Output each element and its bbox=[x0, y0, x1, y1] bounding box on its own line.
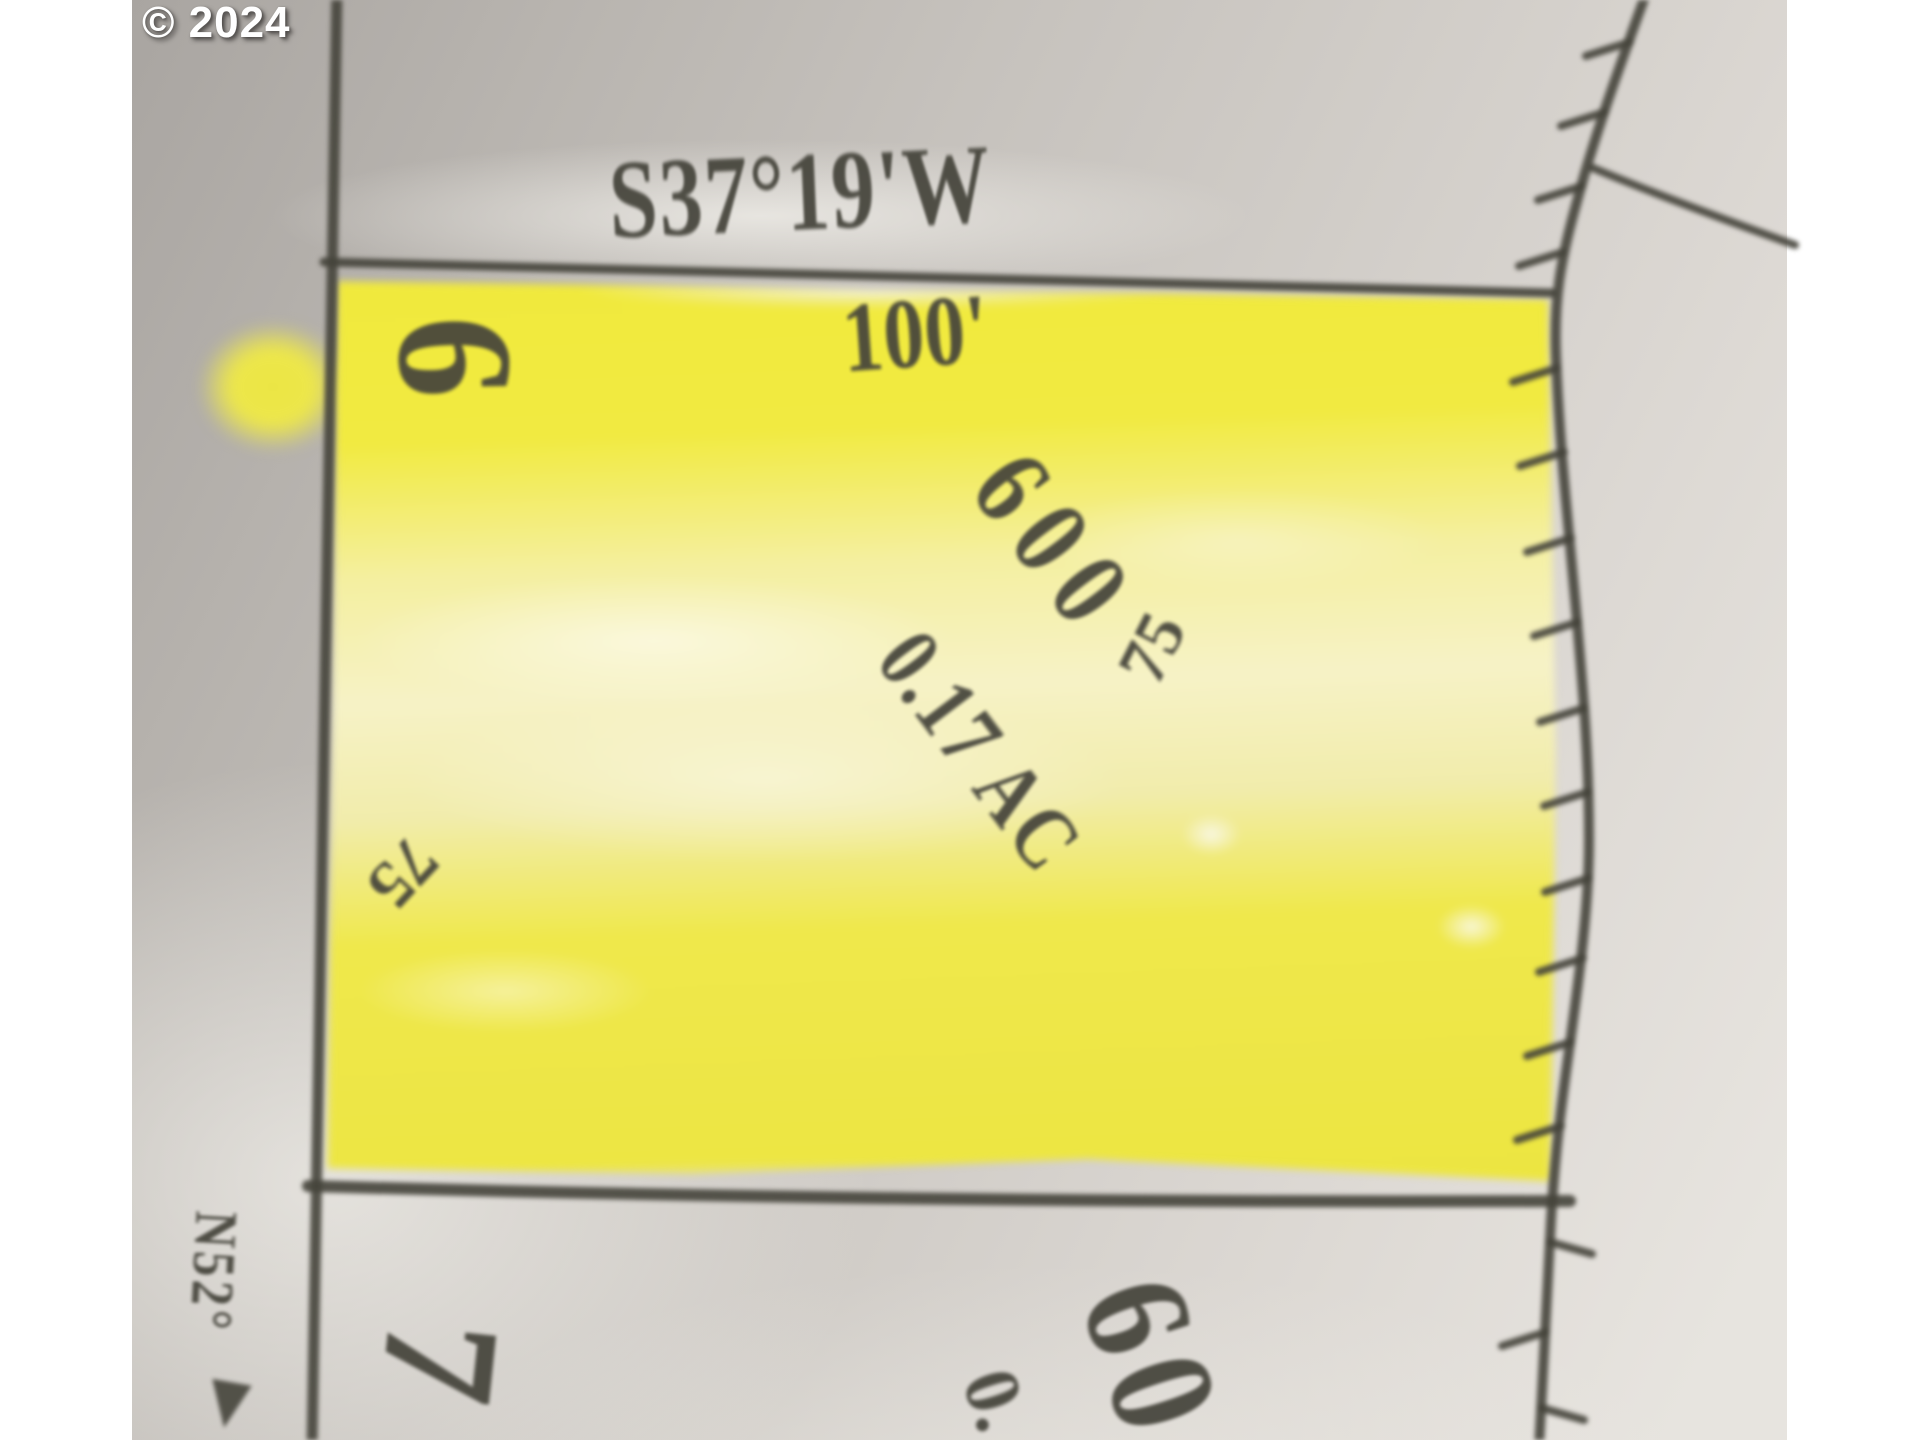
bearing-arrowhead-icon bbox=[204, 1379, 251, 1431]
branch-boundary-line bbox=[1593, 168, 1795, 245]
bearing-label-left: N52° bbox=[175, 1209, 250, 1334]
lot-number-6: 6 bbox=[359, 314, 550, 400]
copyright-watermark: © 2024 bbox=[142, 0, 291, 48]
plat-map-photo-page: S37°19'W 100' 6 600 0.17 AC 75 75 7 60 0… bbox=[0, 0, 1920, 1440]
bottom-boundary-line bbox=[308, 1186, 1570, 1201]
left-boundary-line bbox=[312, 0, 337, 1440]
bearing-label-top: S37°19'W bbox=[606, 120, 994, 266]
dimension-100: 100' bbox=[838, 271, 991, 396]
